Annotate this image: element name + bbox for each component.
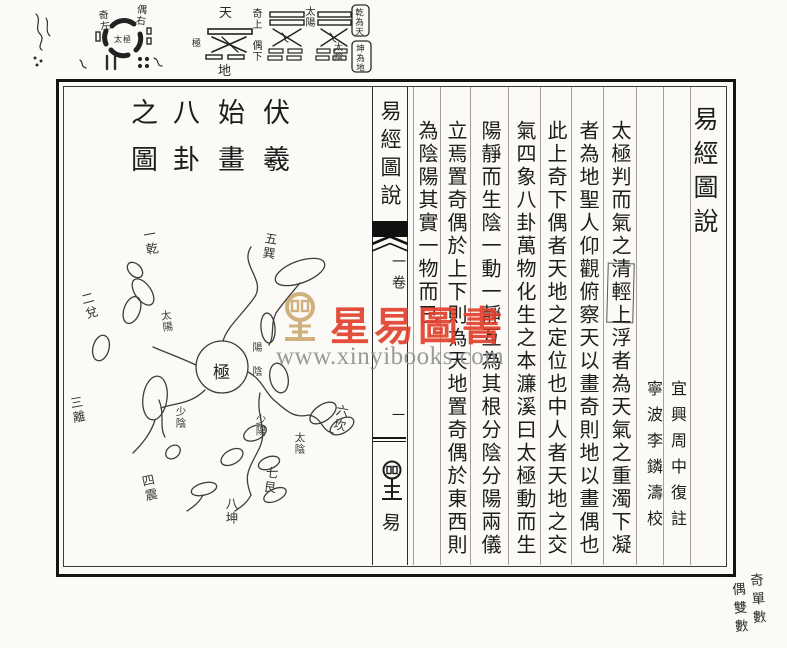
scanned-book-page: { "palette": { "ink": "#1d1d1d", "red": … [0, 0, 787, 648]
column-rule [636, 87, 637, 565]
spine-page-number: 一 [391, 408, 404, 421]
column-rule [571, 87, 572, 565]
cross-right-bottom-label: 偶下 [250, 40, 260, 62]
diagram-center-label: 極 [213, 358, 230, 383]
taiyin-label: 太陰 [333, 42, 342, 62]
text-column-4: 氣四象八卦萬物化生之本濂溪曰太極動而生 [514, 120, 534, 557]
left-title-col-2: 始畫 [215, 98, 242, 192]
spine-title: 易經圖說 [379, 100, 400, 212]
diagram-label-yang: 陽 [250, 342, 260, 353]
kun-wei-di-box-label: 坤為地 [356, 44, 365, 73]
cross-left-label: 極 [192, 36, 202, 49]
column-rule [663, 87, 664, 565]
column-rule [603, 87, 604, 565]
annotator-proofreader: 寧波李鏻濤校 [644, 380, 660, 536]
text-column-2: 者為地聖人仰觀俯察天以畫奇則地以畫偶也 [577, 120, 597, 557]
diagram-label-shaoyin: 少陰 [174, 406, 185, 429]
spine-logo-mark [380, 460, 404, 506]
right-page-title: 易經圖說 [691, 106, 716, 242]
diagram-label-shaoyang: 少陽 [254, 414, 265, 437]
annotator-commentary: 宜興周中復註 [668, 380, 684, 536]
left-title-col-1: 伏羲 [260, 98, 287, 192]
left-title-col-4: 之圖 [128, 98, 155, 192]
margin-note-odd-numbers: 奇單數 [748, 573, 765, 629]
reader-pencil-box [606, 263, 635, 324]
column-rule [540, 87, 541, 565]
diagram-label-xun: 五巽 [260, 231, 276, 261]
diagram-label-taiyin: 太陰 [293, 432, 304, 455]
fishtail-mark [372, 221, 408, 255]
diagram-label-yin: 陰 [250, 366, 260, 377]
diagram-label-gen: 七艮 [261, 465, 277, 495]
cross-top-label: 天 [219, 2, 233, 21]
text-column-1: 太極判而氣之清輕上浮者為天氣之重濁下凝 [609, 120, 629, 557]
cross-right-top-label: 奇上 [250, 8, 260, 30]
column-rule [508, 87, 509, 565]
left-title-col-3: 八卦 [170, 98, 197, 192]
taiji-left-label: 奇左 [96, 9, 109, 32]
spine-logo-char: 易 [381, 507, 402, 535]
xinyibooks-logo [278, 292, 326, 346]
spine-double-rule [373, 437, 406, 439]
cross-bottom-label: 地 [218, 60, 232, 79]
diagram-label-taiyang: 太陽 [158, 309, 172, 333]
text-column-3: 此上奇下偶者天地之定位也中人者天地之交 [545, 120, 565, 557]
margin-note-even-numbers: 偶雙數 [730, 582, 747, 638]
watermark-url: www.xinyibooks.com [276, 343, 504, 371]
taiji-right-label: 偶右 [133, 4, 145, 27]
spine-double-rule [373, 441, 406, 442]
diagram-label-kun: 八坤 [224, 497, 237, 526]
taiji-center-label: 太極 [114, 34, 132, 45]
taiyang-label: 太陽 [303, 6, 313, 28]
spine-volume: 一卷 [390, 254, 404, 296]
qian-wei-tian-box-label: 乾為天 [355, 8, 364, 37]
